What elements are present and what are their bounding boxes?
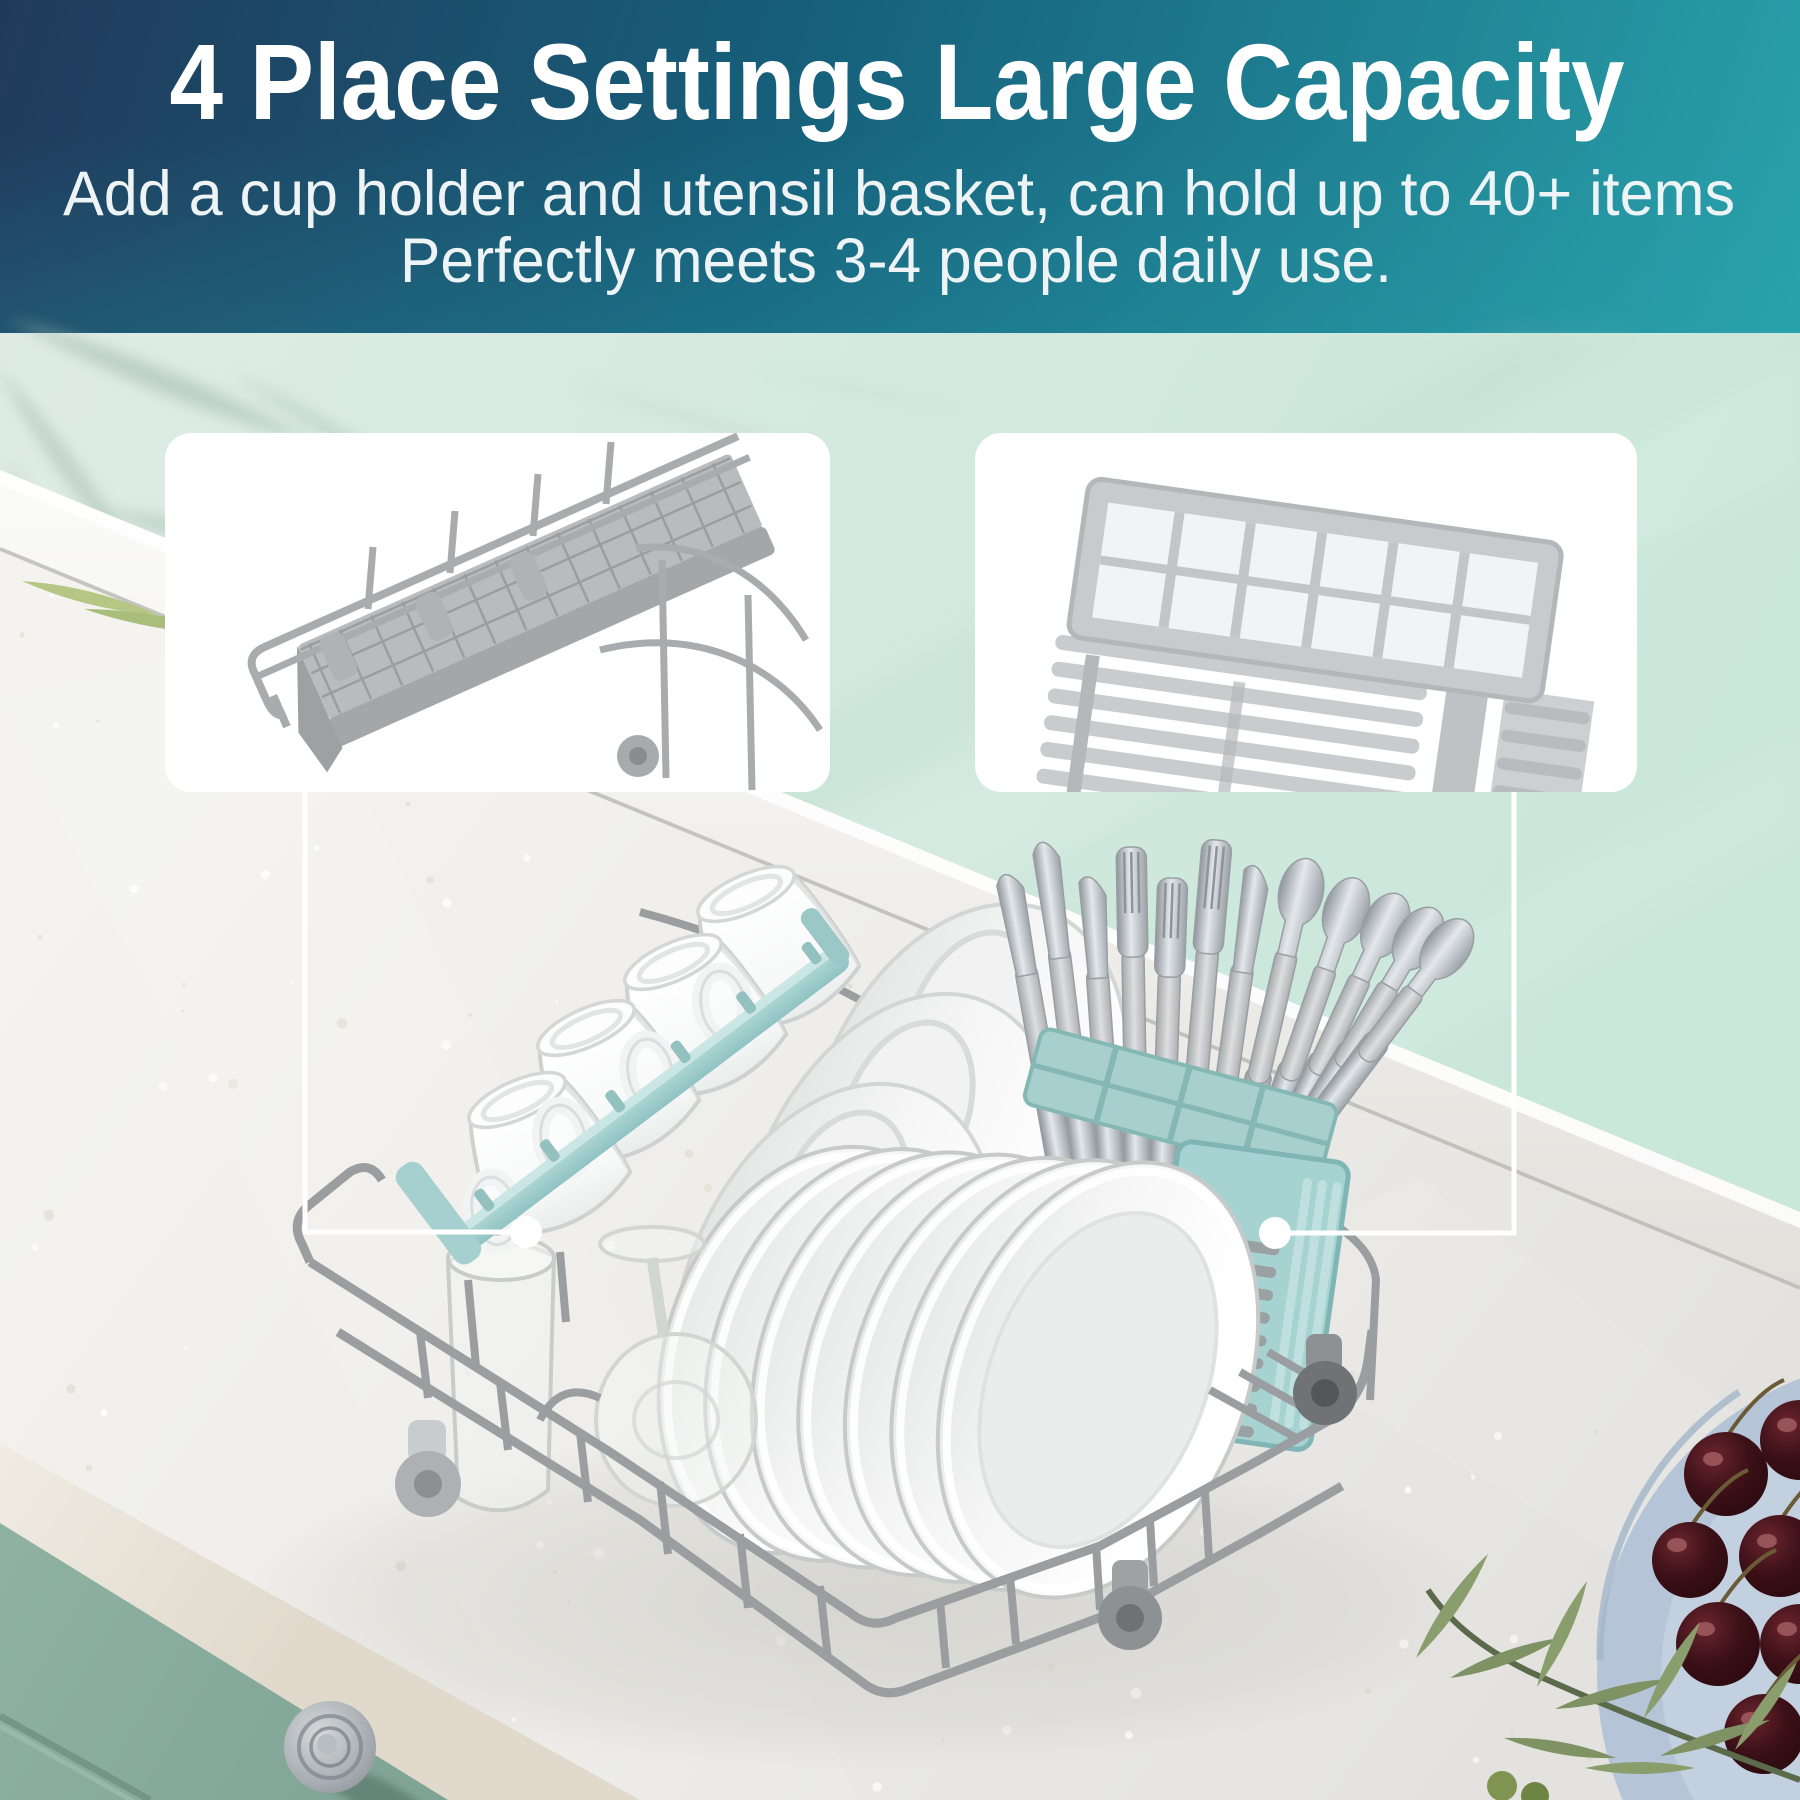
svg-text:4 Place Settings Large Capacit: 4 Place Settings Large Capacity xyxy=(170,21,1625,142)
svg-text:Perfectly meets 3-4 people dai: Perfectly meets 3-4 people daily use. xyxy=(400,226,1392,296)
svg-text:Add a cup holder and utensil b: Add a cup holder and utensil basket, can… xyxy=(63,159,1735,229)
